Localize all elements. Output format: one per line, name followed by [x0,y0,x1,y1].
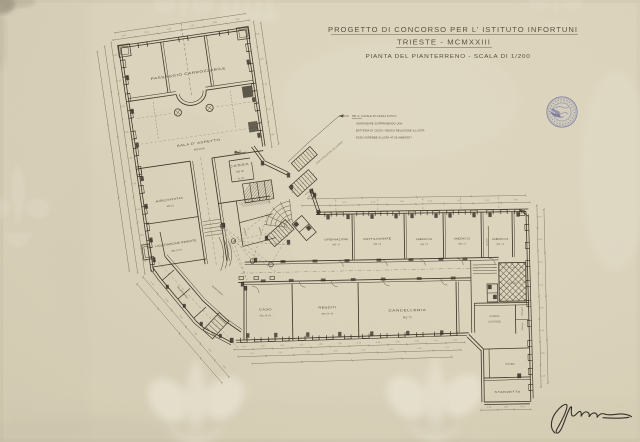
svg-text:MQ.28.00: MQ.28.00 [260,315,272,317]
svg-text:MEDICO: MEDICO [454,237,470,240]
svg-text:RIPOSTO: RIPOSTO [521,323,523,332]
svg-text:STANZA: STANZA [489,315,499,318]
svg-text:MEDICO: MEDICO [416,238,432,241]
svg-text:INGRANDIRE SOPPRIMENDO UNA: INGRANDIRE SOPPRIMENDO UNA [356,122,403,126]
svg-text:DATTILOGRAFE: DATTILOGRAFE [363,237,391,240]
svg-text:PIANTA DEL PIANTERRENO -: PIANTA DEL PIANTERRENO - SCALA DI 1/200 [366,54,531,60]
svg-text:BATTERIA DI CESSI- VEDASI RELA: BATTERIA DI CESSI- VEDASI RELAZIONE ILLU… [356,129,426,133]
svg-text:STANZETTA: STANZETTA [495,391,521,394]
svg-text:CUSTODE: CUSTODE [488,320,501,323]
svg-text:PROGETTO DI CONCORSO PER L: PROGETTO DI CONCORSO PER L’ ISTITUTO INF… [328,27,578,34]
svg-text:MEDICO: MEDICO [492,238,508,241]
svg-text:MQ.34.45: MQ.34.45 [322,313,334,315]
svg-text:MQ 31: MQ 31 [333,244,341,246]
svg-text:CASO: CASO [259,307,272,311]
svg-text:MQ 20: MQ 20 [374,244,382,246]
svg-text:MQ 22: MQ 22 [497,244,505,246]
svg-text:TRIESTE - MCMXXIII: TRIESTE - MCMXXIII [397,40,491,47]
svg-text:ORDINAZIONI: ORDINAZIONI [324,238,348,241]
svg-text:ESSO AVREBBE ALLORA 47.50 AM: ESSO AVREBBE ALLORA 47.50 AMBIENTI [356,136,412,140]
svg-text:MQ 72: MQ 72 [403,316,412,319]
svg-text:CUCINA: CUCINA [506,363,516,366]
svg-text:MQ 22: MQ 22 [421,244,429,246]
svg-text:CORTILE: CORTILE [508,283,518,285]
svg-text:NB. IL LOCALE DI CASSA SI PUO: NB. IL LOCALE DI CASSA SI PUO [352,114,397,118]
svg-text:MQ 22: MQ 22 [459,243,467,245]
svg-text:RENDITI: RENDITI [318,305,336,309]
svg-text:DISPENSA: DISPENSA [520,307,523,317]
svg-text:CANCELLERIA: CANCELLERIA [388,308,427,313]
